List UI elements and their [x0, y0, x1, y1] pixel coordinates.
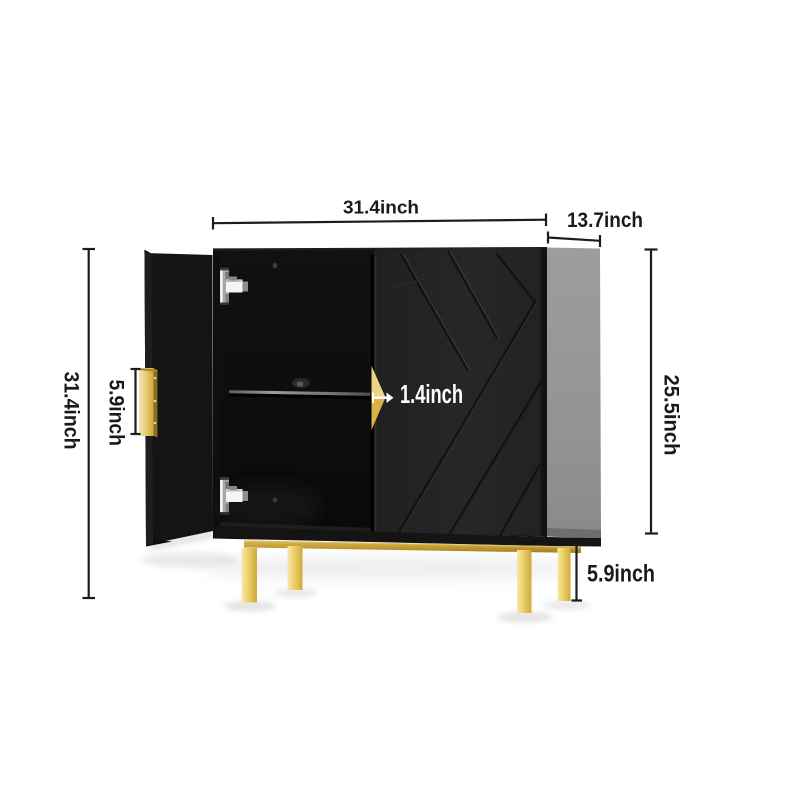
svg-text:5.9inch: 5.9inch	[105, 379, 128, 446]
svg-text:31.4inch: 31.4inch	[343, 197, 419, 218]
svg-text:13.7inch: 13.7inch	[567, 208, 643, 232]
svg-text:5.9inch: 5.9inch	[587, 561, 655, 588]
svg-text:31.4inch: 31.4inch	[60, 372, 83, 450]
svg-text:1.4inch: 1.4inch	[400, 381, 463, 409]
svg-text:25.5inch: 25.5inch	[660, 375, 683, 456]
